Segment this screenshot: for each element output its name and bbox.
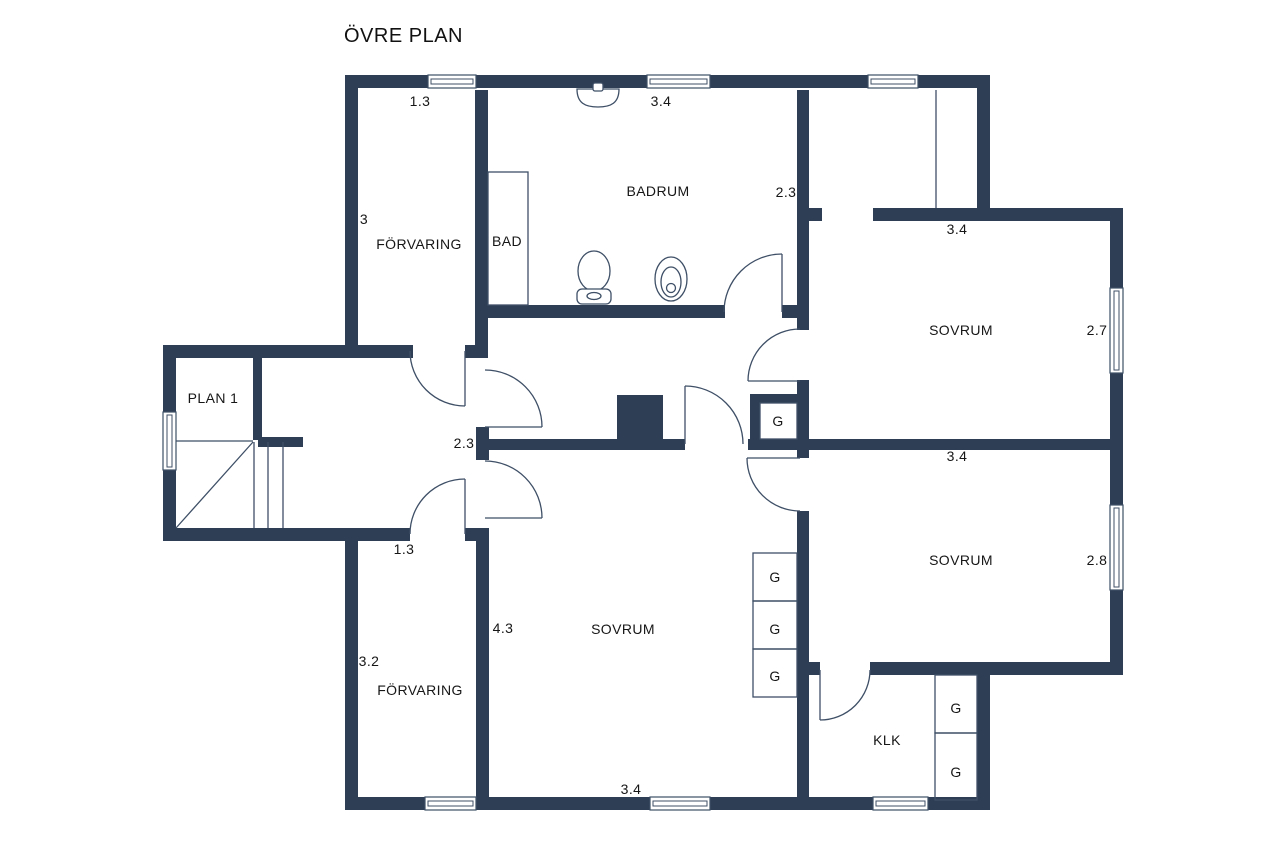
window-icon	[1110, 288, 1123, 373]
window-icon	[425, 797, 476, 810]
window-icon	[650, 797, 710, 810]
door-swing-badrum	[724, 254, 782, 312]
stair-wall-stub	[258, 437, 303, 447]
dimension-label: 3.4	[651, 93, 672, 109]
room-label-forvaring-top: FÖRVARING	[376, 236, 462, 252]
dimension-label: 2.3	[776, 184, 797, 200]
dimension-label: 1.3	[394, 541, 415, 557]
window-icon	[647, 75, 710, 88]
dimension-label: 3	[360, 211, 368, 227]
door-swing-sovrum-se	[747, 458, 800, 511]
dimension-label: 2.3	[454, 435, 475, 451]
door-swing-klk	[820, 670, 870, 720]
dimension-label: 2.7	[1087, 322, 1108, 338]
window-icon	[868, 75, 918, 88]
door-swing-sovrum-middle	[685, 386, 743, 444]
floor-plan-drawing	[0, 0, 1280, 853]
door-swing-corridor-lower	[485, 461, 542, 518]
room-label-sovrum-se: SOVRUM	[929, 552, 993, 568]
dimension-label: 3.2	[359, 653, 380, 669]
closet-label: G	[772, 413, 783, 429]
door-swing-sovrum-ne	[748, 329, 800, 381]
dimension-label: 3.4	[947, 448, 968, 464]
room-label-badrum: BADRUM	[626, 183, 689, 199]
chimney	[617, 395, 663, 439]
floor-plan: ÖVRE PLAN FÖRVARING BAD BADRUM SOVRUM PL…	[0, 0, 1280, 853]
door-swing-forvaring-top	[410, 351, 465, 406]
closet-label: G	[769, 668, 780, 684]
room-label-plan1: PLAN 1	[188, 390, 239, 406]
dimension-label: 3.4	[947, 221, 968, 237]
closet-label: G	[769, 569, 780, 585]
door-swing-forvaring-bottom	[410, 479, 465, 534]
closet-label: G	[950, 700, 961, 716]
window-icon	[428, 75, 476, 88]
room-label-bad: BAD	[492, 233, 522, 249]
room-label-klk: KLK	[873, 732, 901, 748]
room-label-sovrum-ne: SOVRUM	[929, 322, 993, 338]
page-title: ÖVRE PLAN	[344, 25, 463, 48]
toilet-icon	[577, 251, 611, 304]
window-icon	[1110, 505, 1123, 590]
window-icon	[163, 412, 176, 470]
window-icon	[873, 797, 928, 810]
dimension-label: 4.3	[493, 620, 514, 636]
room-label-forvaring-bottom: FÖRVARING	[377, 682, 463, 698]
closet-label: G	[950, 764, 961, 780]
dimension-label: 3.4	[621, 781, 642, 797]
dimension-label: 1.3	[410, 93, 431, 109]
bidet-icon	[655, 257, 687, 301]
closet-label: G	[769, 621, 780, 637]
staircase	[176, 441, 283, 528]
room-label-sovrum-south: SOVRUM	[591, 621, 655, 637]
door-swing-corridor-upper	[485, 370, 542, 427]
dimension-label: 2.8	[1087, 552, 1108, 568]
